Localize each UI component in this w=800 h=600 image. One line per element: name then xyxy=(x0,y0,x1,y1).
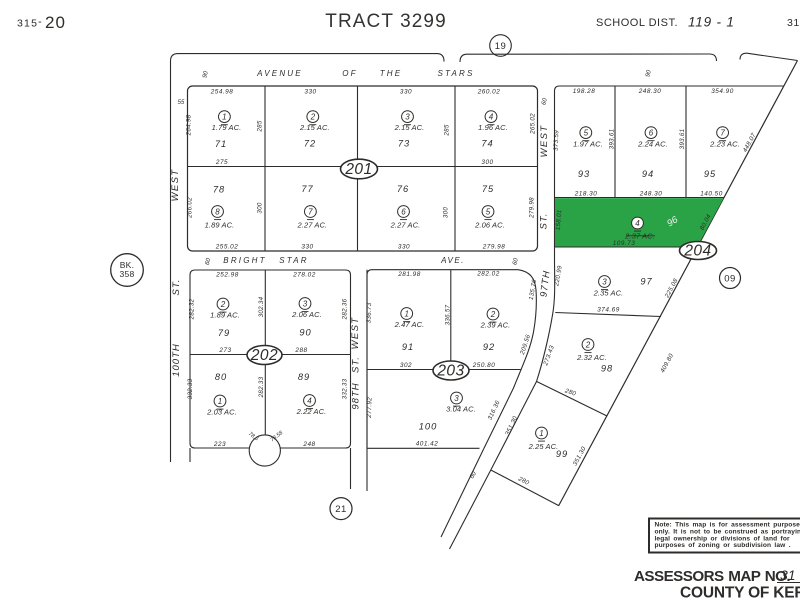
svg-text:6: 6 xyxy=(649,128,654,137)
svg-text:285: 285 xyxy=(444,124,451,136)
svg-text:98TH: 98TH xyxy=(351,382,362,409)
svg-text:330: 330 xyxy=(304,89,316,96)
svg-text:373.59: 373.59 xyxy=(553,130,561,151)
svg-text:255.02: 255.02 xyxy=(215,244,239,251)
svg-text:4: 4 xyxy=(307,396,312,405)
svg-text:300: 300 xyxy=(443,207,450,218)
svg-text:279.98: 279.98 xyxy=(482,244,506,251)
svg-text:98: 98 xyxy=(601,364,613,374)
svg-text:302.34: 302.34 xyxy=(258,296,265,317)
svg-text:252.98: 252.98 xyxy=(215,272,239,279)
svg-text:74: 74 xyxy=(481,139,493,149)
svg-text:20: 20 xyxy=(45,13,66,32)
svg-text:300: 300 xyxy=(481,159,493,166)
svg-text:WEST: WEST xyxy=(350,316,361,349)
svg-text:315: 315 xyxy=(17,18,38,30)
svg-text:282.33: 282.33 xyxy=(258,376,265,398)
svg-text:2: 2 xyxy=(585,340,591,349)
svg-text:203: 203 xyxy=(436,363,464,380)
svg-text:72: 72 xyxy=(304,139,316,149)
svg-text:330: 330 xyxy=(301,244,313,251)
svg-text:ASSESSORS MAP NO.: ASSESSORS MAP NO. xyxy=(634,568,790,585)
svg-text:3.04 AC.: 3.04 AC. xyxy=(446,405,476,414)
svg-text:91: 91 xyxy=(402,342,414,352)
svg-text:250.80: 250.80 xyxy=(472,362,496,369)
svg-text:SCHOOL DIST.: SCHOOL DIST. xyxy=(596,17,678,29)
svg-text:330: 330 xyxy=(398,244,410,251)
svg-text:80: 80 xyxy=(215,372,227,382)
svg-text:248.30: 248.30 xyxy=(638,88,662,95)
svg-text:300: 300 xyxy=(257,202,264,213)
svg-text:2: 2 xyxy=(310,112,316,121)
svg-text:109.73: 109.73 xyxy=(613,240,636,247)
svg-text:2.15 AC.: 2.15 AC. xyxy=(394,123,425,132)
svg-text:358: 358 xyxy=(119,269,134,279)
svg-text:3: 3 xyxy=(303,299,308,308)
svg-text:31: 31 xyxy=(787,17,800,29)
svg-text:ST.: ST. xyxy=(539,213,550,230)
svg-text:09: 09 xyxy=(724,274,736,285)
svg-text:STARS: STARS xyxy=(437,69,474,78)
svg-text:248.30: 248.30 xyxy=(639,191,663,198)
svg-text:264.98: 264.98 xyxy=(186,114,193,136)
svg-text:2.03 AC.: 2.03 AC. xyxy=(206,408,237,417)
svg-text:1: 1 xyxy=(539,429,543,438)
svg-text:95: 95 xyxy=(704,169,716,179)
svg-text:STAR: STAR xyxy=(279,256,309,265)
svg-text:2.47 AC.: 2.47 AC. xyxy=(394,320,425,329)
svg-text:90: 90 xyxy=(299,328,311,338)
svg-text:COUNTY OF KERN: COUNTY OF KERN xyxy=(680,585,800,600)
svg-text:201: 201 xyxy=(344,161,372,178)
svg-text:WEST: WEST xyxy=(170,168,181,201)
svg-text:2.23 AC.: 2.23 AC. xyxy=(709,139,740,148)
svg-text:ST.: ST. xyxy=(171,279,182,296)
svg-text:198.28: 198.28 xyxy=(573,88,596,95)
svg-text:31: 31 xyxy=(780,567,796,583)
svg-text:204: 204 xyxy=(683,243,711,260)
svg-text:336.73: 336.73 xyxy=(365,302,373,323)
svg-text:100: 100 xyxy=(419,422,438,432)
svg-text:288: 288 xyxy=(294,347,307,354)
svg-text:1.89 AC.: 1.89 AC. xyxy=(210,311,240,320)
svg-text:WEST: WEST xyxy=(539,124,550,157)
svg-text:302: 302 xyxy=(400,362,412,369)
svg-text:2.24 AC.: 2.24 AC. xyxy=(637,139,668,148)
svg-text:THE: THE xyxy=(380,69,403,78)
svg-text:75: 75 xyxy=(482,184,494,194)
svg-text:266.02: 266.02 xyxy=(187,197,194,219)
svg-text:277.92: 277.92 xyxy=(366,397,374,419)
svg-text:401.42: 401.42 xyxy=(416,441,439,448)
svg-text:purposes of zoning or subdivis: purposes of zoning or subdivision law . xyxy=(655,542,791,549)
svg-text:1.79 AC.: 1.79 AC. xyxy=(212,123,242,132)
svg-text:2.06 AC.: 2.06 AC. xyxy=(291,310,322,319)
svg-text:5: 5 xyxy=(486,207,491,216)
svg-text:5: 5 xyxy=(584,128,589,137)
svg-text:336.57: 336.57 xyxy=(445,304,452,325)
svg-text:282.32: 282.32 xyxy=(189,298,196,320)
svg-text:354.90: 354.90 xyxy=(711,88,734,95)
svg-text:1: 1 xyxy=(222,112,226,121)
svg-text:1.97 AC.: 1.97 AC. xyxy=(573,139,603,148)
svg-text:278.02: 278.02 xyxy=(292,272,316,279)
svg-text:2.39 AC.: 2.39 AC. xyxy=(480,321,511,330)
svg-text:TRACT 3299: TRACT 3299 xyxy=(325,11,447,32)
svg-text:2.06 AC.: 2.06 AC. xyxy=(474,221,505,230)
svg-text:279.98: 279.98 xyxy=(529,197,536,219)
svg-text:140.50: 140.50 xyxy=(700,191,723,198)
svg-text:79: 79 xyxy=(218,328,230,338)
svg-text:77: 77 xyxy=(301,184,313,194)
svg-text:99: 99 xyxy=(556,449,568,459)
svg-text:330: 330 xyxy=(400,89,412,96)
svg-text:260.02: 260.02 xyxy=(477,89,501,96)
svg-text:254.98: 254.98 xyxy=(210,89,234,96)
svg-text:ST.: ST. xyxy=(351,356,362,373)
svg-text:3: 3 xyxy=(602,277,607,286)
svg-text:2.27 AC.: 2.27 AC. xyxy=(390,221,421,230)
svg-text:393.61: 393.61 xyxy=(679,129,686,150)
svg-text:2: 2 xyxy=(220,300,226,309)
svg-text:6: 6 xyxy=(401,207,406,216)
svg-text:374.69: 374.69 xyxy=(597,307,620,314)
svg-text:285: 285 xyxy=(257,120,264,132)
svg-text:281.98: 281.98 xyxy=(397,271,421,278)
svg-text:AVENUE: AVENUE xyxy=(256,69,303,78)
svg-text:4: 4 xyxy=(489,112,494,121)
svg-text:2.35 AC.: 2.35 AC. xyxy=(593,289,624,298)
svg-text:1.96 AC.: 1.96 AC. xyxy=(478,123,508,132)
svg-text:92: 92 xyxy=(483,342,495,352)
svg-text:223: 223 xyxy=(213,441,226,448)
svg-text:78: 78 xyxy=(213,185,225,195)
svg-text:BRIGHT: BRIGHT xyxy=(223,256,266,265)
svg-text:2.32 AC.: 2.32 AC. xyxy=(576,353,607,362)
svg-text:2.22 AC.: 2.22 AC. xyxy=(296,407,327,416)
svg-text:332.33: 332.33 xyxy=(187,378,194,399)
svg-text:7: 7 xyxy=(720,128,725,137)
svg-text:21: 21 xyxy=(335,504,347,515)
svg-text:1: 1 xyxy=(218,397,222,406)
svg-text:202: 202 xyxy=(250,347,278,364)
svg-text:1: 1 xyxy=(404,309,408,318)
svg-text:1.89 AC.: 1.89 AC. xyxy=(205,221,235,230)
svg-text:2.15 AC.: 2.15 AC. xyxy=(299,123,330,132)
svg-text:8: 8 xyxy=(215,207,220,216)
svg-text:393.61: 393.61 xyxy=(609,129,616,150)
svg-text:4: 4 xyxy=(635,219,640,228)
svg-text:275: 275 xyxy=(215,159,228,166)
svg-text:71: 71 xyxy=(215,139,227,149)
svg-text:218.30: 218.30 xyxy=(574,191,598,198)
svg-text:3: 3 xyxy=(454,394,459,403)
svg-text:93: 93 xyxy=(578,169,590,179)
svg-text:19: 19 xyxy=(495,41,507,52)
svg-text:97: 97 xyxy=(640,277,652,287)
svg-text:273: 273 xyxy=(218,347,231,354)
svg-text:AVE.: AVE. xyxy=(440,256,465,265)
svg-text:73: 73 xyxy=(398,139,410,149)
svg-text:2.27 AC.: 2.27 AC. xyxy=(297,221,328,230)
svg-text:248: 248 xyxy=(302,441,315,448)
svg-text:2.25 AC.: 2.25 AC. xyxy=(528,442,559,451)
svg-text:55: 55 xyxy=(178,100,185,106)
svg-text:2: 2 xyxy=(490,310,496,319)
svg-text:89: 89 xyxy=(298,372,310,382)
svg-text:282.02: 282.02 xyxy=(476,271,500,278)
svg-text:OF: OF xyxy=(342,69,358,78)
svg-text:282.36: 282.36 xyxy=(342,298,349,320)
svg-text:332.33: 332.33 xyxy=(342,378,349,399)
svg-text:76: 76 xyxy=(397,184,409,194)
svg-text:119 - 1: 119 - 1 xyxy=(688,15,735,30)
svg-text:94: 94 xyxy=(642,169,654,179)
svg-text:100TH: 100TH xyxy=(171,343,182,377)
svg-text:-: - xyxy=(38,16,42,28)
svg-text:3: 3 xyxy=(405,112,410,121)
svg-text:265.02: 265.02 xyxy=(530,113,537,135)
svg-text:158.01: 158.01 xyxy=(555,209,563,230)
svg-text:7: 7 xyxy=(308,207,313,216)
